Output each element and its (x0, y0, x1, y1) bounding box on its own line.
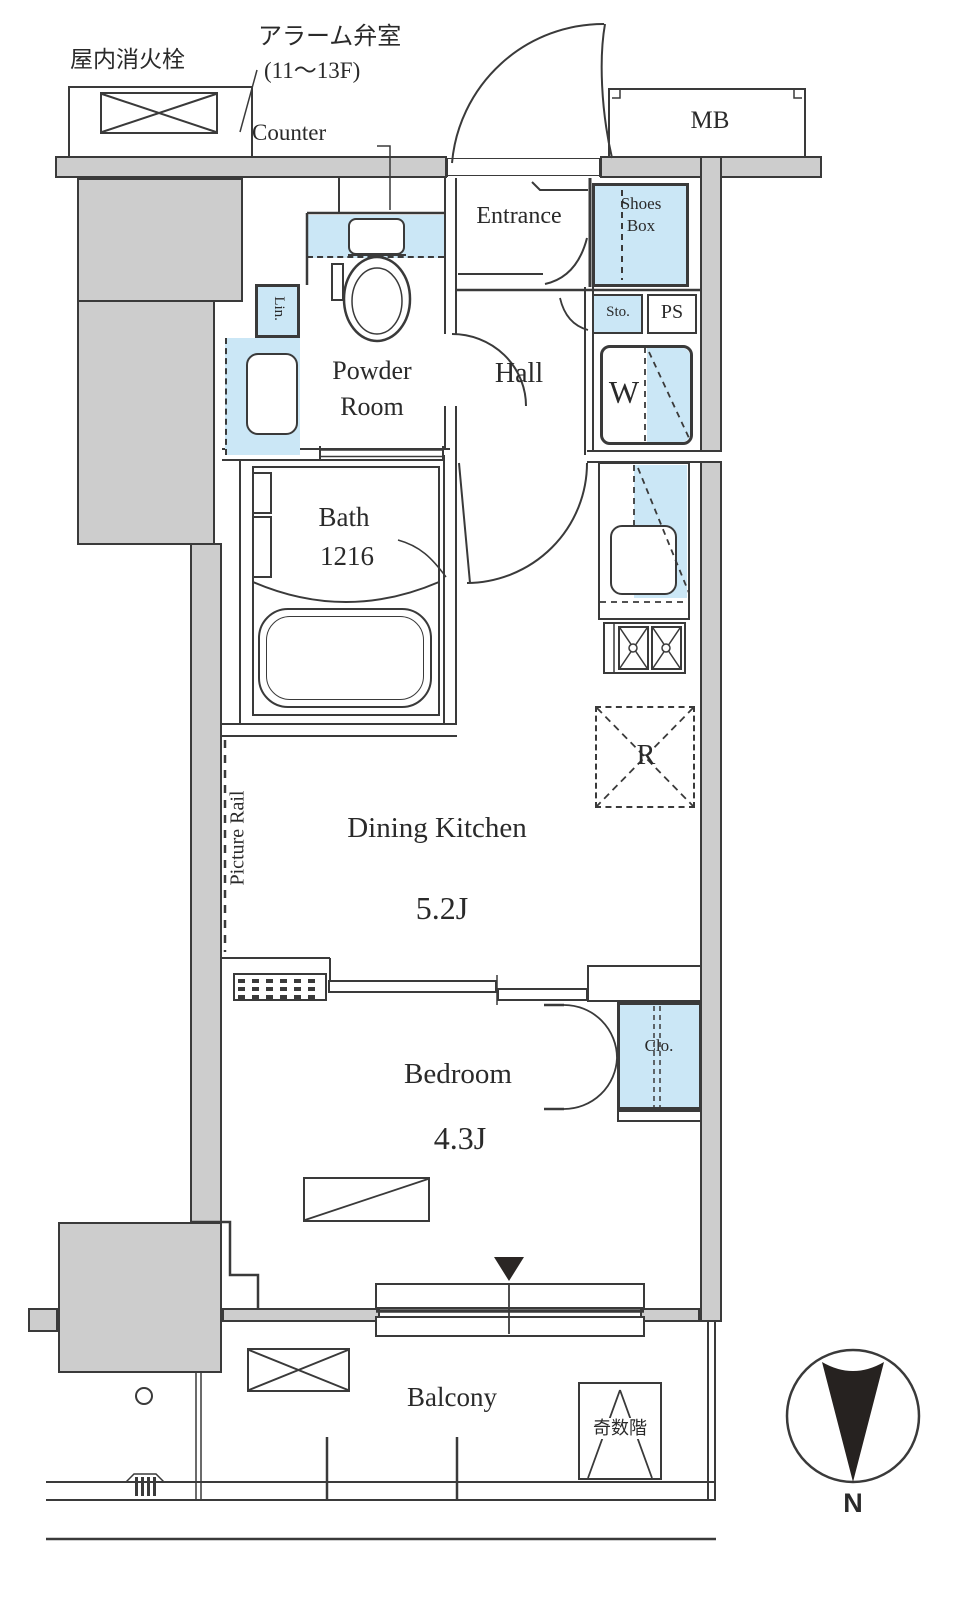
closet (617, 1002, 702, 1110)
wall-bath-right (443, 455, 457, 730)
alarm-valve-label-1: アラーム弁室 (258, 24, 401, 52)
window-sash-outer (375, 1283, 645, 1309)
sliding-door-panel-a (328, 980, 497, 993)
wall-right (700, 156, 722, 1322)
shoes-box-label-2: Box (627, 216, 655, 236)
toilet-tank (348, 218, 405, 255)
wall-balcony-b (640, 1308, 700, 1322)
balcony-label: Balcony (407, 1382, 497, 1413)
closet-bottom-plate (617, 1110, 702, 1122)
column-top-left-b (77, 300, 215, 545)
wash-basin (246, 353, 298, 435)
picture-rail-label: Picture Rail (227, 791, 250, 886)
hatch-row (238, 987, 322, 991)
bedroom-low-cabinet (303, 1177, 430, 1222)
balcony-equipment-box (247, 1348, 350, 1392)
washer-space-blue (647, 348, 690, 442)
alarm-valve-label-2: (11～13F) (264, 58, 360, 84)
powder-room-label-2: Room (340, 392, 404, 422)
odd-floors-label: 奇数階 (591, 1418, 649, 1439)
refrigerator-label: R (637, 740, 656, 772)
kitchen-sink (610, 525, 677, 595)
counter-label: Counter (252, 120, 326, 146)
bath-label-2: 1216 (320, 541, 374, 572)
entrance-label: Entrance (476, 203, 561, 231)
divider-hatch-box (233, 973, 327, 1001)
wall-balcony-arm-left (28, 1308, 58, 1332)
storage-label: Sto. (606, 304, 630, 321)
entrance-door-threshold (447, 158, 600, 176)
wall-balcony-a (222, 1308, 380, 1322)
bath-fixture-a (252, 472, 272, 514)
washer-label: W (609, 374, 639, 411)
dining-kitchen-label: Dining Kitchen (347, 812, 527, 845)
closet-label: Clo. (645, 1036, 674, 1056)
shoes-box-label-1: Shoes (621, 194, 662, 214)
wall-top-left (55, 156, 447, 178)
stove-burner-left (618, 626, 649, 670)
bath-label-1: Bath (319, 502, 370, 533)
wall-bath-bottom (222, 723, 457, 737)
stove-burner-right (651, 626, 682, 670)
bedroom-size-label: 4.3J (434, 1120, 486, 1157)
linen-label: Lin. (270, 296, 287, 321)
bathtub-inner (266, 616, 424, 700)
column-top-left-a (77, 178, 243, 302)
fire-hydrant-label: 屋内消火栓 (70, 47, 185, 73)
pipe-space-label: PS (661, 301, 683, 324)
compass-needle-icon (822, 1362, 884, 1482)
fire-hydrant-inner-box (100, 92, 218, 134)
dining-kitchen-size-label: 5.2J (416, 890, 468, 927)
column-bottom-left (58, 1222, 222, 1373)
wall-powder-hall-upper (444, 178, 457, 334)
floor-plan: 屋内消火栓 アラーム弁室 (11～13F) Counter MB Entranc… (0, 0, 960, 1609)
wall-left (190, 543, 222, 1224)
bedroom-label: Bedroom (404, 1058, 512, 1091)
hatch-row (238, 979, 322, 983)
closet-top-frame (587, 965, 702, 1002)
hatch-row (238, 995, 322, 999)
bath-fixture-b (252, 516, 272, 578)
meter-box-label: MB (691, 107, 730, 136)
hall-label: Hall (495, 358, 543, 390)
balcony-vent (135, 1477, 159, 1496)
compass-north-label: N (843, 1488, 863, 1519)
window-sash-inner (375, 1316, 645, 1337)
powder-room-label-1: Powder (332, 356, 411, 386)
sliding-door-panel-b (497, 988, 588, 1001)
